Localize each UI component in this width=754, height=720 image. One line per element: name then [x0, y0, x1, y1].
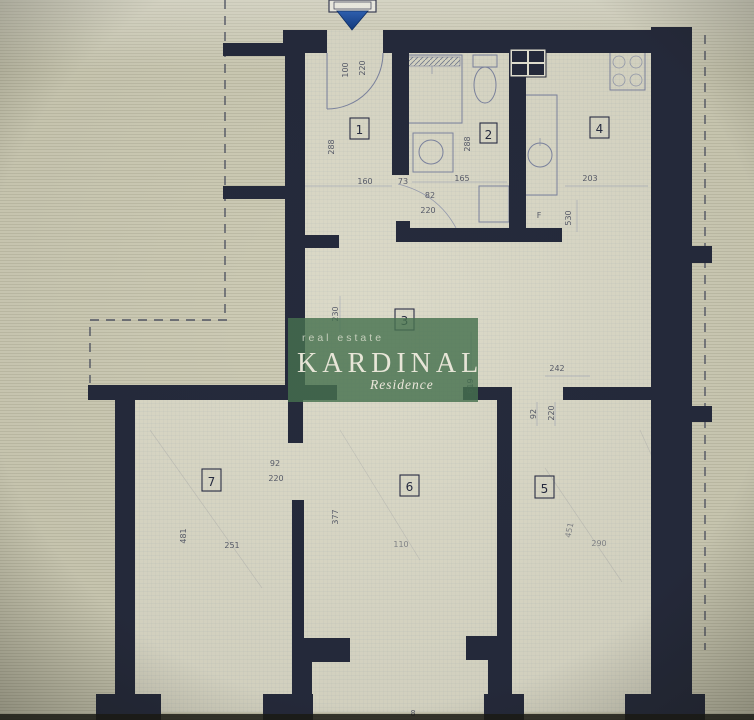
- photo-bottom-edge: [0, 714, 754, 720]
- floorplan-photo: 1 2 3 4 5 6 7 100 220 288 160 73 165 288…: [0, 0, 754, 720]
- floorplan-drawing: 1 2 3 4 5 6 7 100 220 288 160 73 165 288…: [0, 0, 754, 720]
- photo-effects: [0, 0, 754, 720]
